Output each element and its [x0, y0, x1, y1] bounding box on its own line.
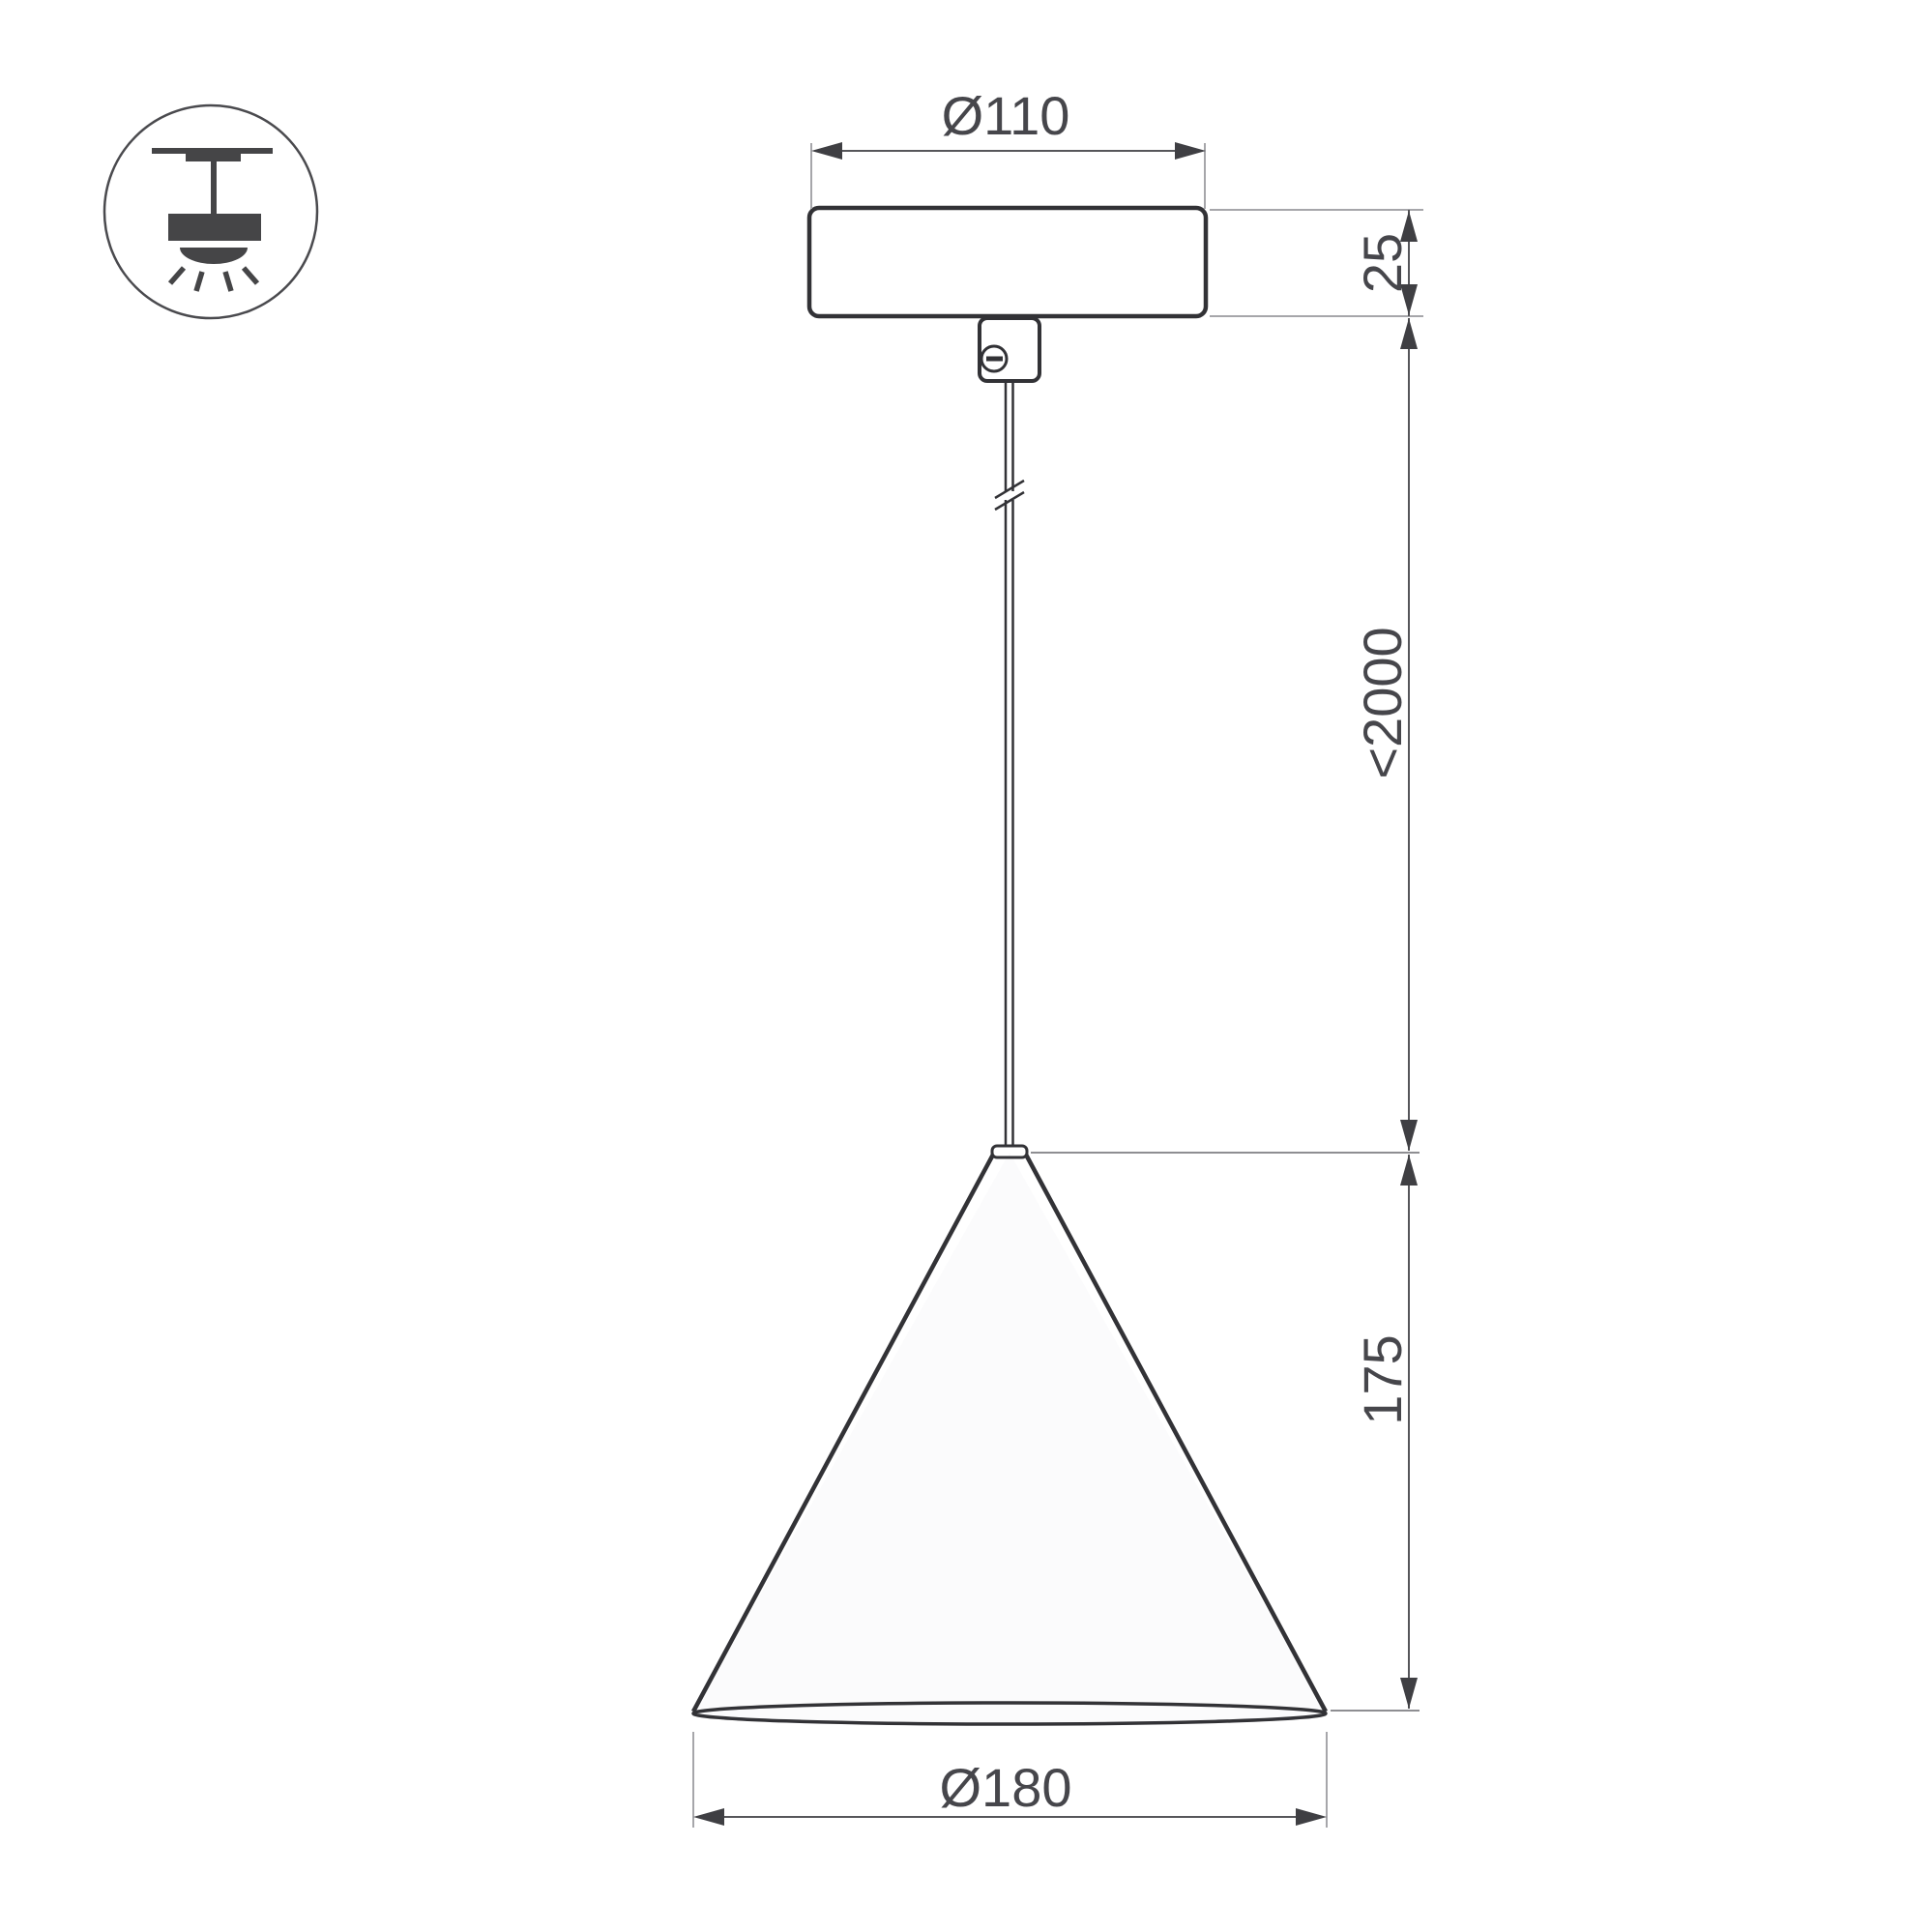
canopy-outline [809, 208, 1206, 316]
icon-lamp-body [168, 214, 261, 241]
icon-track-mount [186, 154, 241, 161]
arrow-up [1400, 1155, 1418, 1186]
dimension-canopy-diameter: Ø110 [811, 85, 1206, 209]
shade-fill [693, 1153, 1326, 1724]
icon-lamp-dome [180, 248, 248, 264]
dim-label-suspension-length: <2000 [1352, 627, 1413, 778]
dim-label-canopy-height: 25 [1352, 233, 1413, 293]
drawing-canvas: Ø110 25 <2000 175 Ø180 [0, 0, 1932, 1932]
suspension-cable [995, 381, 1024, 1147]
icon-suspension-rod [211, 161, 217, 215]
arrow-left [811, 142, 842, 160]
arrow-down [1400, 1678, 1418, 1709]
arrow-left [693, 1808, 724, 1826]
lamp-drawing [693, 208, 1326, 1724]
icon-ceiling-line [152, 148, 273, 154]
cord-grip-screw-slot [986, 357, 1003, 362]
arrow-right [1175, 142, 1206, 160]
arrow-right [1296, 1808, 1327, 1826]
dimension-suspension-length: <2000 [1031, 318, 1420, 1153]
dim-label-canopy-diameter: Ø110 [942, 85, 1070, 146]
dim-label-shade-height: 175 [1352, 1334, 1413, 1424]
pendant-ceiling-light-icon [104, 105, 317, 318]
dimension-canopy-height: 25 [1210, 210, 1423, 316]
dim-label-shade-diameter: Ø180 [940, 1757, 1072, 1818]
pendant-dimension-drawing: Ø110 25 <2000 175 Ø180 [0, 0, 1932, 1932]
dimension-shade-diameter: Ø180 [693, 1732, 1327, 1828]
arrow-down [1400, 1120, 1418, 1151]
icon-light-rays [170, 268, 257, 291]
dimension-shade-height: 175 [1331, 1155, 1420, 1711]
arrow-up [1400, 318, 1418, 349]
